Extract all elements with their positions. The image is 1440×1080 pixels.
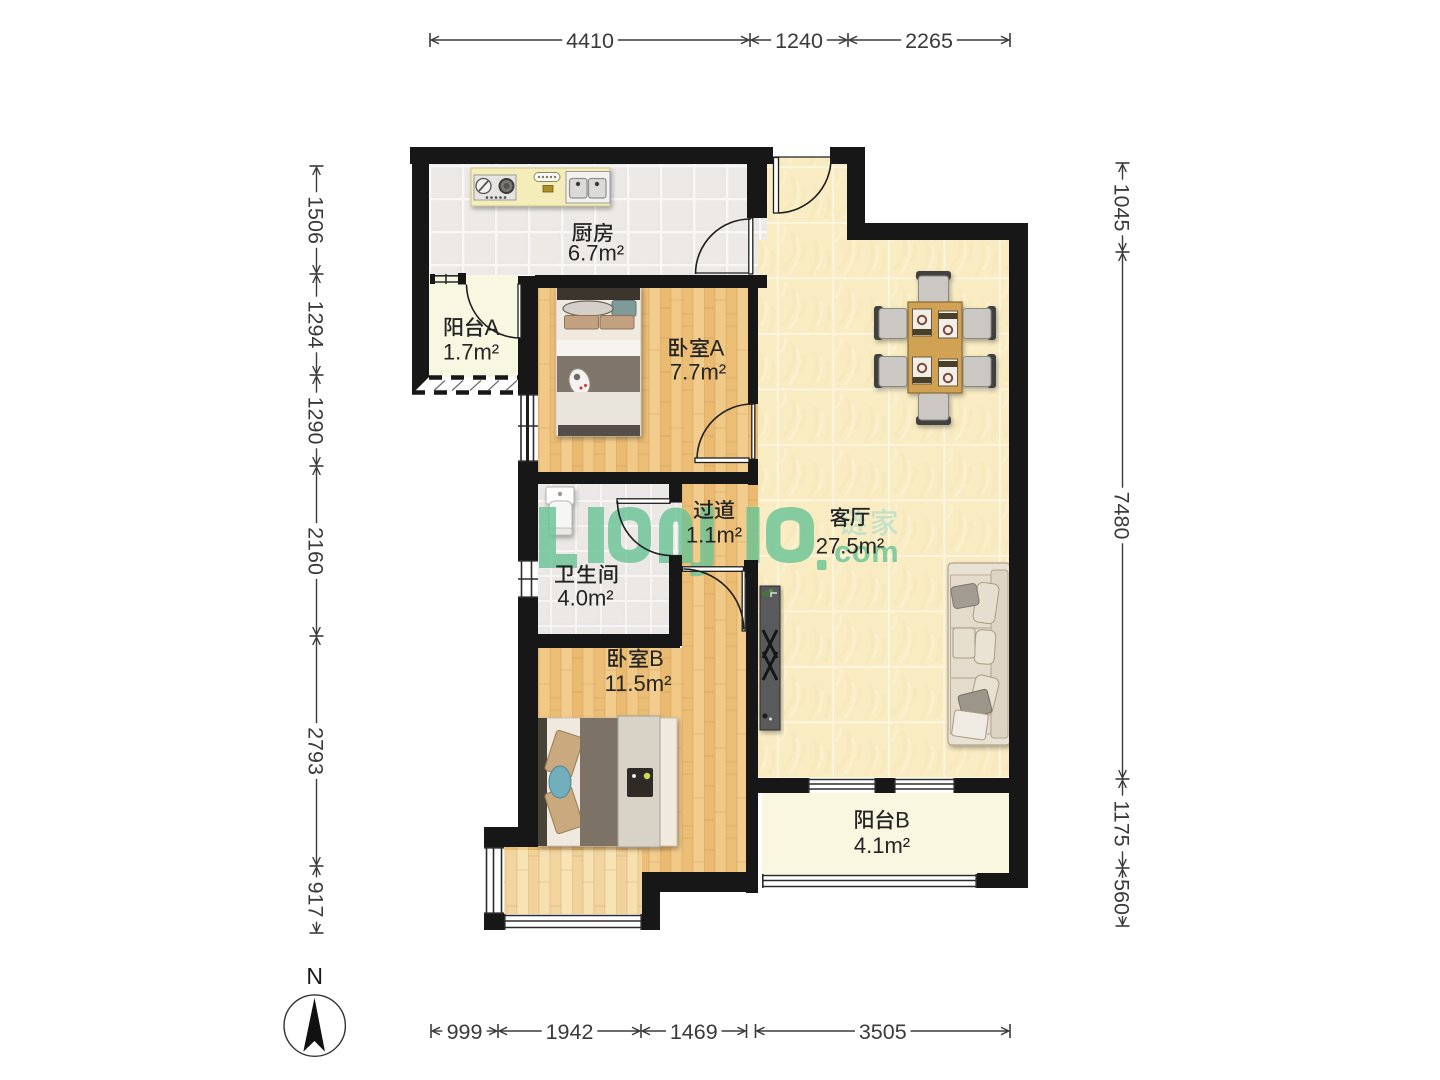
svg-text:1045: 1045	[1110, 184, 1134, 232]
svg-text:4.0m²: 4.0m²	[557, 586, 613, 611]
svg-text:4410: 4410	[566, 29, 614, 53]
svg-text:B: B	[649, 646, 664, 671]
svg-text:1240: 1240	[775, 29, 823, 53]
svg-text:1175: 1175	[1110, 800, 1134, 846]
svg-text:6.7m²: 6.7m²	[568, 241, 624, 266]
svg-text:560: 560	[1110, 879, 1134, 915]
svg-text:3505: 3505	[859, 1020, 907, 1044]
svg-text:1.1m²: 1.1m²	[686, 523, 742, 548]
svg-text:A: A	[485, 315, 500, 340]
svg-text:11.5m²: 11.5m²	[605, 671, 672, 696]
svg-text:1290: 1290	[304, 397, 328, 445]
svg-text:N: N	[306, 963, 323, 989]
svg-text:2265: 2265	[905, 29, 953, 53]
svg-text:27.5m²: 27.5m²	[816, 534, 884, 559]
svg-text:1469: 1469	[670, 1020, 718, 1044]
svg-text:A: A	[710, 336, 725, 361]
svg-text:1294: 1294	[304, 301, 328, 349]
svg-text:7480: 7480	[1110, 492, 1134, 540]
svg-text:2160: 2160	[304, 527, 328, 575]
svg-text:1942: 1942	[546, 1020, 594, 1044]
svg-text:B: B	[895, 808, 910, 833]
svg-text:1506: 1506	[304, 196, 328, 244]
svg-text:7.7m²: 7.7m²	[670, 360, 726, 385]
svg-text:4.1m²: 4.1m²	[854, 833, 910, 858]
svg-text:1.7m²: 1.7m²	[443, 340, 499, 365]
svg-text:917: 917	[304, 882, 328, 918]
svg-text:999: 999	[447, 1020, 483, 1044]
svg-text:2793: 2793	[304, 727, 328, 775]
